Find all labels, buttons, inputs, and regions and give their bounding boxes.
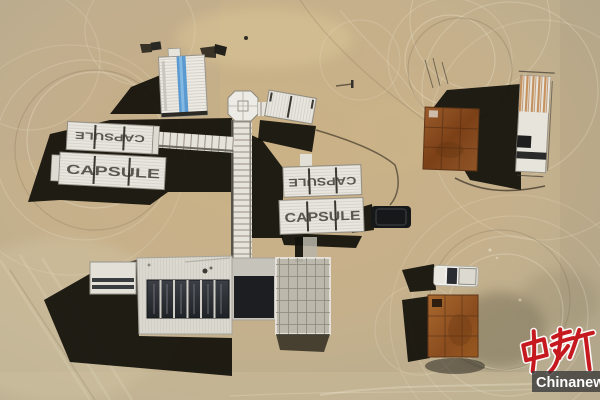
dark-suv <box>371 206 411 228</box>
east-top-row: CAPSULE <box>283 165 362 198</box>
white-utility-building <box>513 71 554 177</box>
scene: CAPSULE CAPSULE CAPSULE CAPSULE <box>0 0 600 400</box>
chinanews-banner: Chinanews <box>532 371 600 392</box>
center-section <box>232 258 276 320</box>
dark-glass <box>234 276 274 318</box>
junction-octagon <box>228 91 258 121</box>
white-pickup-truck <box>434 265 479 287</box>
skylight-panels <box>147 280 229 318</box>
west-top-row: CAPSULE <box>66 121 159 154</box>
rusted-structure-north <box>423 107 479 171</box>
west-bottom-row: CAPSULE <box>50 152 166 190</box>
aerial-photo-desert-capsule-base: CAPSULE CAPSULE CAPSULE CAPSULE <box>0 0 600 400</box>
chinanews-banner-text: Chinanews <box>536 375 600 391</box>
cluster-link-stub <box>300 154 312 167</box>
framework-wing <box>276 258 330 352</box>
blue-stripe-tower <box>158 47 207 117</box>
chinanews-watermark: 中新 Chinanews <box>522 327 600 392</box>
capsule-label-east-top: CAPSULE <box>288 174 356 188</box>
rusted-structure-south <box>428 295 478 357</box>
east-bottom-row: CAPSULE <box>279 197 364 234</box>
capsule-label-east-bottom: CAPSULE <box>284 208 361 226</box>
